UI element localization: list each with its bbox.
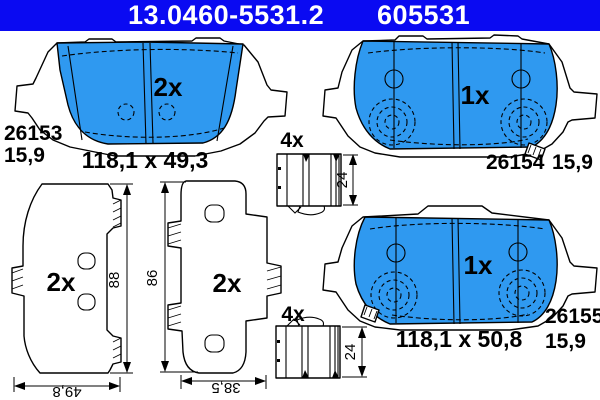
plate-middle-height-dim: 86: [144, 270, 161, 287]
part-id-26154: 26154: [486, 151, 545, 174]
plate-middle-width-dim: 38,5: [211, 379, 240, 396]
quantity-bottom-right: 1x: [464, 250, 493, 280]
part-id-26155: 26155: [545, 305, 600, 328]
quantity-top-left: 2x: [154, 72, 183, 102]
backplate-view-middle: 2x 86 38,5: [144, 181, 281, 396]
friction-pad-surface: [354, 41, 557, 149]
plate-left-height-dim: 88: [106, 272, 123, 289]
quantity-top-right: 1x: [461, 80, 490, 110]
clip-height-dim-bottom: 24: [342, 344, 359, 361]
backplate-view-left: 2x 88 49,8: [12, 184, 133, 400]
quantity-clip-bottom: 4x: [281, 303, 305, 326]
size-top-left: 118,1 x 49,3: [82, 147, 209, 173]
thickness-26155: 15,9: [545, 330, 586, 353]
thickness-26153: 15,9: [4, 144, 45, 167]
technical-drawing: 2x 26153 15,9 118,1 x 49,3 1x: [0, 0, 600, 400]
quantity-clip-top: 4x: [280, 129, 304, 152]
pad-drawing-top-right: 1x: [323, 35, 597, 160]
quantity-plate-left: 2x: [47, 267, 76, 297]
thickness-26154: 15,9: [552, 151, 593, 174]
fitting-clip-top: 24 4x: [277, 129, 358, 215]
quantity-plate-middle: 2x: [213, 268, 242, 298]
plate-left-width-dim: 49,8: [52, 383, 81, 400]
part-id-26153: 26153: [4, 122, 62, 145]
size-bottom-right: 118,1 x 50,8: [396, 326, 523, 352]
brake-pad-catalog-drawing: 13.0460-5531.2 605531 2x 26153 15,9 118,…: [0, 0, 600, 400]
clip-hook: [298, 206, 325, 215]
clip-height-dim-top: 24: [334, 172, 351, 189]
